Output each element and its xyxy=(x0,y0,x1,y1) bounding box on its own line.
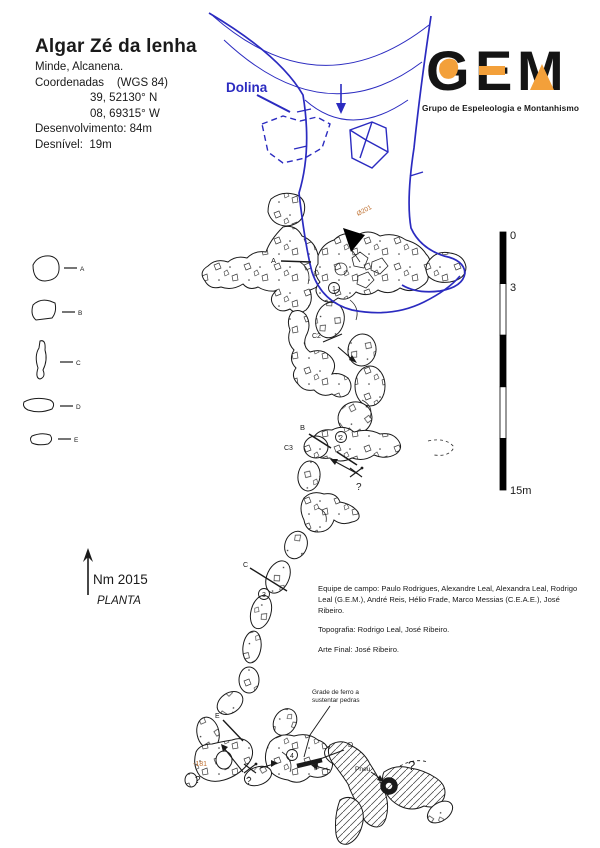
cave-survey-page: { "header": { "title": "Algar Zé da lenh… xyxy=(0,0,600,848)
planta-label: PLANTA xyxy=(97,595,141,607)
cross-section-label-E: E xyxy=(74,437,79,444)
section-label-B: B xyxy=(300,423,305,432)
cross-section-shape-A xyxy=(33,256,59,281)
credits-team: Equipe de campo: Paulo Rodrigues, Alexan… xyxy=(318,584,586,616)
dolina-slope-tick xyxy=(410,172,423,176)
scale-label-15m: 15m xyxy=(510,485,531,497)
cave-loop-hole xyxy=(216,751,232,769)
section-line-E xyxy=(223,720,243,741)
cross-section-shape-E xyxy=(31,434,52,445)
station-number: 2 xyxy=(339,435,343,442)
pickaxe-icon xyxy=(350,467,363,477)
cave-wall-segment xyxy=(239,667,259,693)
dolina-contour-arc xyxy=(305,100,408,120)
dolina-arrow-head xyxy=(336,103,346,114)
gem-logo-art: G E M xyxy=(413,40,588,100)
cross-section-shape-D xyxy=(24,398,54,411)
section-label-D: D xyxy=(348,742,353,749)
dolina-boulder-block xyxy=(350,122,388,168)
gem-logo: G E M Grupo de Espeleologia e Montanhism… xyxy=(413,40,588,113)
cave-wall-segment xyxy=(296,460,322,493)
scale-label-0: 0 xyxy=(510,230,516,242)
cave-wall-segment xyxy=(241,630,263,664)
cave-wall-segment xyxy=(281,528,311,562)
cave-wall-segment xyxy=(345,332,378,368)
development-value: Desenvolvimento: 84m xyxy=(35,122,275,138)
question-mark: ? xyxy=(246,776,252,787)
question-mark: ? xyxy=(195,775,201,786)
station-number: 3 xyxy=(262,592,266,599)
cave-wall-segment xyxy=(301,493,359,532)
station-number: 1 xyxy=(332,286,336,293)
cave-wall-segment xyxy=(268,704,301,739)
station-number: 4 xyxy=(290,753,294,760)
scale-label-3: 3 xyxy=(510,282,516,294)
north-label: Nm 2015 xyxy=(93,572,148,587)
section-label-E: E xyxy=(215,713,220,720)
section-label-C: C xyxy=(243,562,248,569)
section-label-C2: C2 xyxy=(312,333,321,340)
section-label-C3: C3 xyxy=(284,445,293,452)
section-line-A xyxy=(281,261,311,262)
cross-section-label-C: C xyxy=(76,360,81,367)
depth-value: Desnível: 19m xyxy=(35,138,275,154)
title-block: Algar Zé da lenha Minde, Alcanena. Coord… xyxy=(35,36,275,153)
coordinates-label: Coordenadas (WGS 84) xyxy=(35,76,275,92)
cave-wall-segment xyxy=(355,366,385,406)
question-mark: ? xyxy=(408,758,415,773)
gem-logo-subtitle: Grupo de Espeleologia e Montanhismo xyxy=(413,103,588,113)
pneu-label: Pneu xyxy=(355,766,371,773)
logo-e-orange-bar xyxy=(479,66,505,75)
cave-wall-segment xyxy=(202,226,327,312)
credits-art: Arte Final: José Ribeiro. xyxy=(318,645,586,656)
dashed-contour xyxy=(428,440,454,455)
entrance-code-label: Ø201 xyxy=(356,204,374,218)
north-arrow xyxy=(83,548,93,595)
longitude-value: 08, 69315° W xyxy=(35,107,275,123)
depth-point-label: -181 xyxy=(193,761,207,768)
boulder-facet xyxy=(360,140,366,158)
latitude-value: 39, 52130° N xyxy=(35,91,275,107)
cave-wall-segment xyxy=(261,557,295,597)
cross-sections xyxy=(24,256,78,445)
question-mark: ? xyxy=(356,482,362,493)
cross-section-label-B: B xyxy=(78,310,82,317)
cave-slope-passage xyxy=(336,797,364,844)
scale-bar xyxy=(500,232,506,490)
page-title: Algar Zé da lenha xyxy=(35,36,275,58)
cross-section-label-A: A xyxy=(80,266,85,273)
cross-section-shape-B xyxy=(32,300,56,320)
boulder-facet xyxy=(366,122,372,140)
grate-label-line1: Grade de ferro a xyxy=(312,689,359,696)
location-text: Minde, Alcanena. xyxy=(35,60,275,76)
credits-topography: Topografia: Rodrigo Leal, José Ribeiro. xyxy=(318,625,586,636)
grate-label-line2: sustentar pedras xyxy=(312,697,360,704)
cross-section-shape-C xyxy=(36,341,46,379)
boulder-facet xyxy=(350,130,388,152)
cross-section-label-D: D xyxy=(76,404,81,411)
dolina-slope-tick xyxy=(297,109,311,112)
section-label-A: A xyxy=(271,256,276,265)
credits-block: Equipe de campo: Paulo Rodrigues, Alexan… xyxy=(318,584,586,665)
dolina-slope-tick xyxy=(294,146,307,149)
